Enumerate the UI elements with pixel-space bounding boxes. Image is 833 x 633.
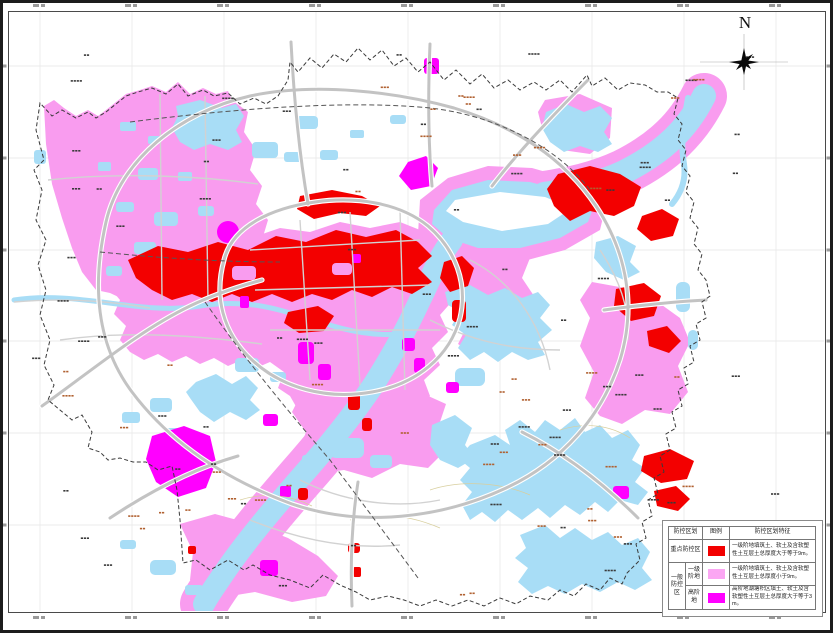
legend-desc-high-terrace: 高阶地湖塘积区填土、软土及含软塑性土互层土总厚度大于等于3m。 [730, 586, 816, 610]
legend-desc-terrace: 一级阶地填筑土、软土及含软塑性土互层土总厚度小于9m。 [730, 563, 816, 586]
legend-box: 防控区划 图例 防控区划特征 重点防控区 一级阶地填筑土、软土及含软塑性土互层土… [662, 520, 823, 617]
legend-zone-key: 重点防控区 [669, 540, 703, 563]
legend-swatch-cell [703, 563, 730, 586]
legend-desc-key: 一级阶地填筑土、软土及含软塑性土互层土总厚度大于等于9m。 [730, 540, 816, 563]
terrace-zone-swatch [708, 569, 725, 579]
legend-header-zone: 防控区划 [669, 527, 703, 540]
legend-header-symbol: 图例 [703, 527, 730, 540]
map-sheet: N 防控区划 图例 防控区划特征 重点防控区 一级阶地填筑土、软土及含软塑性土互… [0, 0, 833, 633]
key-zone-swatch [708, 546, 725, 556]
legend-zone-general-group: 一般防控区 [669, 563, 686, 610]
legend-zone-terrace: 一级阶地 [686, 563, 703, 586]
legend-zone-high-terrace: 高阶地 [686, 586, 703, 610]
north-label: N [735, 13, 755, 33]
legend-swatch-cell [703, 540, 730, 563]
legend-swatch-cell [703, 586, 730, 610]
legend-table: 防控区划 图例 防控区划特征 重点防控区 一级阶地填筑土、软土及含软塑性土互层土… [668, 526, 816, 610]
legend-header-feature: 防控区划特征 [730, 527, 816, 540]
high-terrace-zone-swatch [708, 593, 725, 603]
